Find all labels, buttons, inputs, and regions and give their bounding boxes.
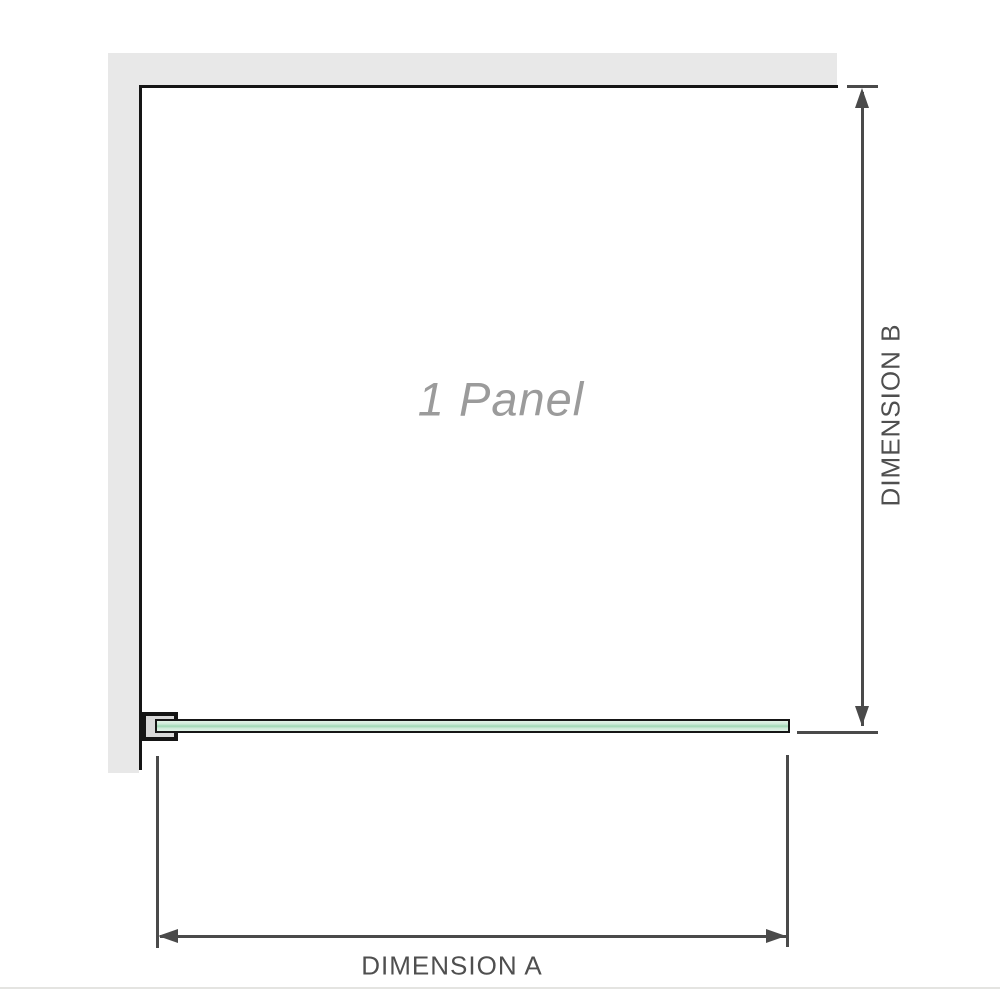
dim-b-bottom-tick	[797, 731, 878, 734]
dimension-b-label: DIMENSION B	[876, 324, 907, 507]
arrow-down-icon	[855, 706, 869, 726]
dim-a-left-extension-line	[156, 756, 159, 948]
arrow-left-icon	[158, 929, 178, 943]
wall-left-bar	[108, 53, 139, 773]
panel-count-label: 1 Panel	[418, 372, 584, 427]
dim-a-line	[160, 935, 786, 938]
wall-top-edge-line	[139, 85, 838, 88]
wall-left-edge-line	[139, 85, 142, 770]
dim-b-line	[861, 92, 864, 726]
wall-top-bar	[108, 53, 837, 86]
glass-panel	[155, 719, 790, 733]
dimension-a-label: DIMENSION A	[361, 951, 542, 982]
arrow-right-icon	[766, 929, 786, 943]
bottom-divider-line	[0, 987, 1000, 989]
dimension-diagram: 1 Panel DIMENSION B DIMENSION A	[0, 0, 1000, 1000]
arrow-up-icon	[855, 88, 869, 108]
dim-a-right-extension-line	[786, 755, 789, 947]
